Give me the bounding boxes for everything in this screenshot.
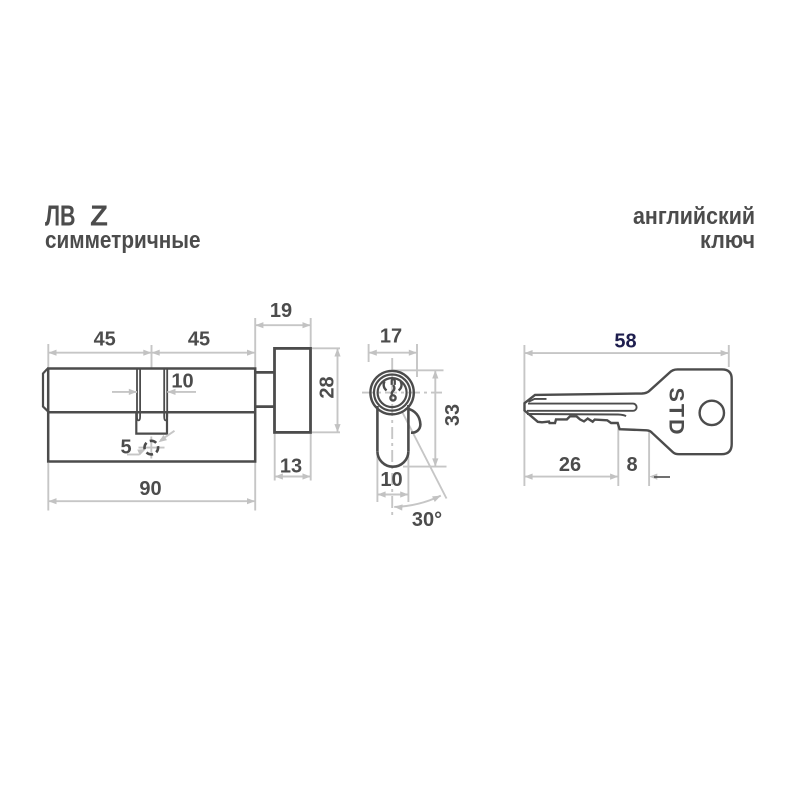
svg-text:13: 13: [280, 456, 302, 478]
svg-text:5: 5: [120, 437, 131, 459]
svg-text:45: 45: [188, 329, 210, 351]
svg-text:8: 8: [626, 454, 637, 476]
svg-text:26: 26: [559, 454, 581, 476]
svg-text:STD: STD: [664, 388, 688, 437]
svg-text:45: 45: [94, 329, 116, 351]
svg-text:симметричные: симметричные: [45, 227, 201, 254]
svg-text:28: 28: [317, 376, 339, 398]
svg-text:30°: 30°: [412, 509, 442, 531]
svg-text:17: 17: [380, 325, 402, 347]
svg-text:английский: английский: [633, 203, 755, 230]
svg-text:10: 10: [380, 469, 402, 491]
svg-text:58: 58: [614, 331, 636, 353]
svg-text:ключ: ключ: [700, 227, 755, 254]
svg-text:19: 19: [270, 300, 292, 322]
svg-text:10: 10: [171, 371, 193, 393]
svg-text:90: 90: [139, 478, 161, 500]
svg-text:33: 33: [442, 404, 464, 426]
